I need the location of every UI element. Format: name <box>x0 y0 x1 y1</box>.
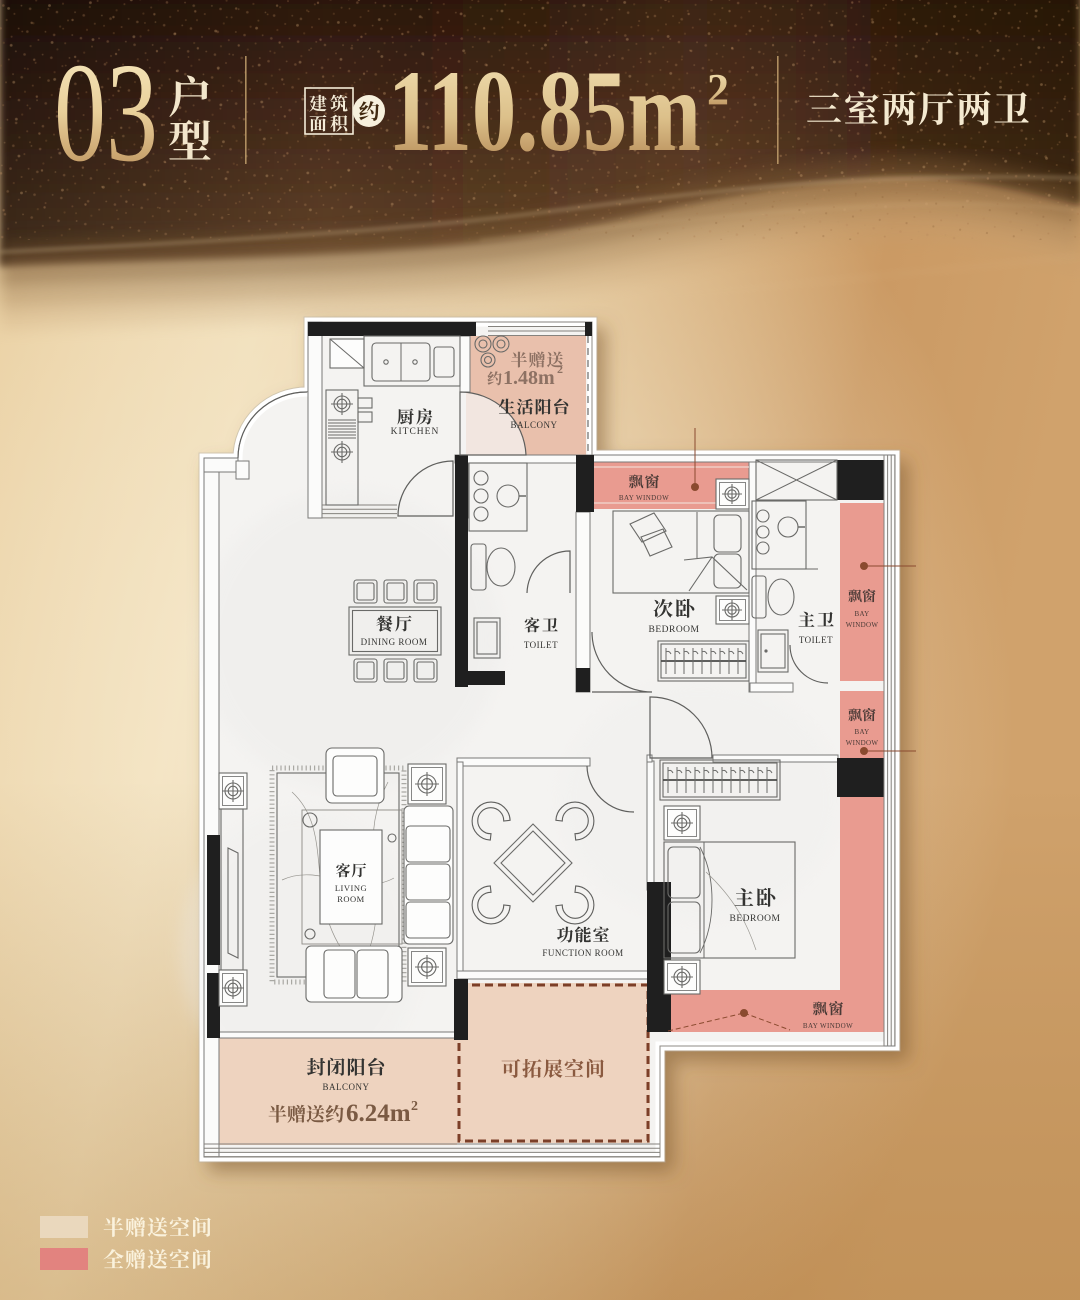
svg-text:6.24m: 6.24m <box>346 1100 411 1127</box>
svg-text:03: 03 <box>54 33 158 191</box>
svg-text:KITCHEN: KITCHEN <box>391 427 440 437</box>
svg-text:2: 2 <box>411 1099 418 1114</box>
svg-text:BAY WINDOW: BAY WINDOW <box>803 1022 853 1030</box>
svg-text:TOILET: TOILET <box>799 635 833 645</box>
svg-text:1.48m: 1.48m <box>503 367 555 389</box>
svg-text:BEDROOM: BEDROOM <box>729 914 780 924</box>
svg-text:FUNCTION ROOM: FUNCTION ROOM <box>542 948 623 958</box>
svg-text:BAY WINDOW: BAY WINDOW <box>619 494 669 502</box>
svg-text:BEDROOM: BEDROOM <box>648 625 699 635</box>
svg-text:BAY: BAY <box>854 610 869 618</box>
svg-text:ROOM: ROOM <box>337 894 365 904</box>
svg-text:TOILET: TOILET <box>524 640 558 650</box>
svg-text:110.85m: 110.85m <box>388 47 701 176</box>
svg-text:BAY: BAY <box>854 728 869 736</box>
svg-text:BALCONY: BALCONY <box>322 1082 369 1092</box>
svg-text:2: 2 <box>557 362 563 376</box>
svg-text:2: 2 <box>707 65 729 114</box>
svg-text:DINING ROOM: DINING ROOM <box>361 637 428 647</box>
svg-text:WINDOW: WINDOW <box>846 621 879 629</box>
svg-text:LIVING: LIVING <box>335 883 367 893</box>
svg-text:BALCONY: BALCONY <box>510 420 557 430</box>
svg-text:WINDOW: WINDOW <box>846 739 879 747</box>
